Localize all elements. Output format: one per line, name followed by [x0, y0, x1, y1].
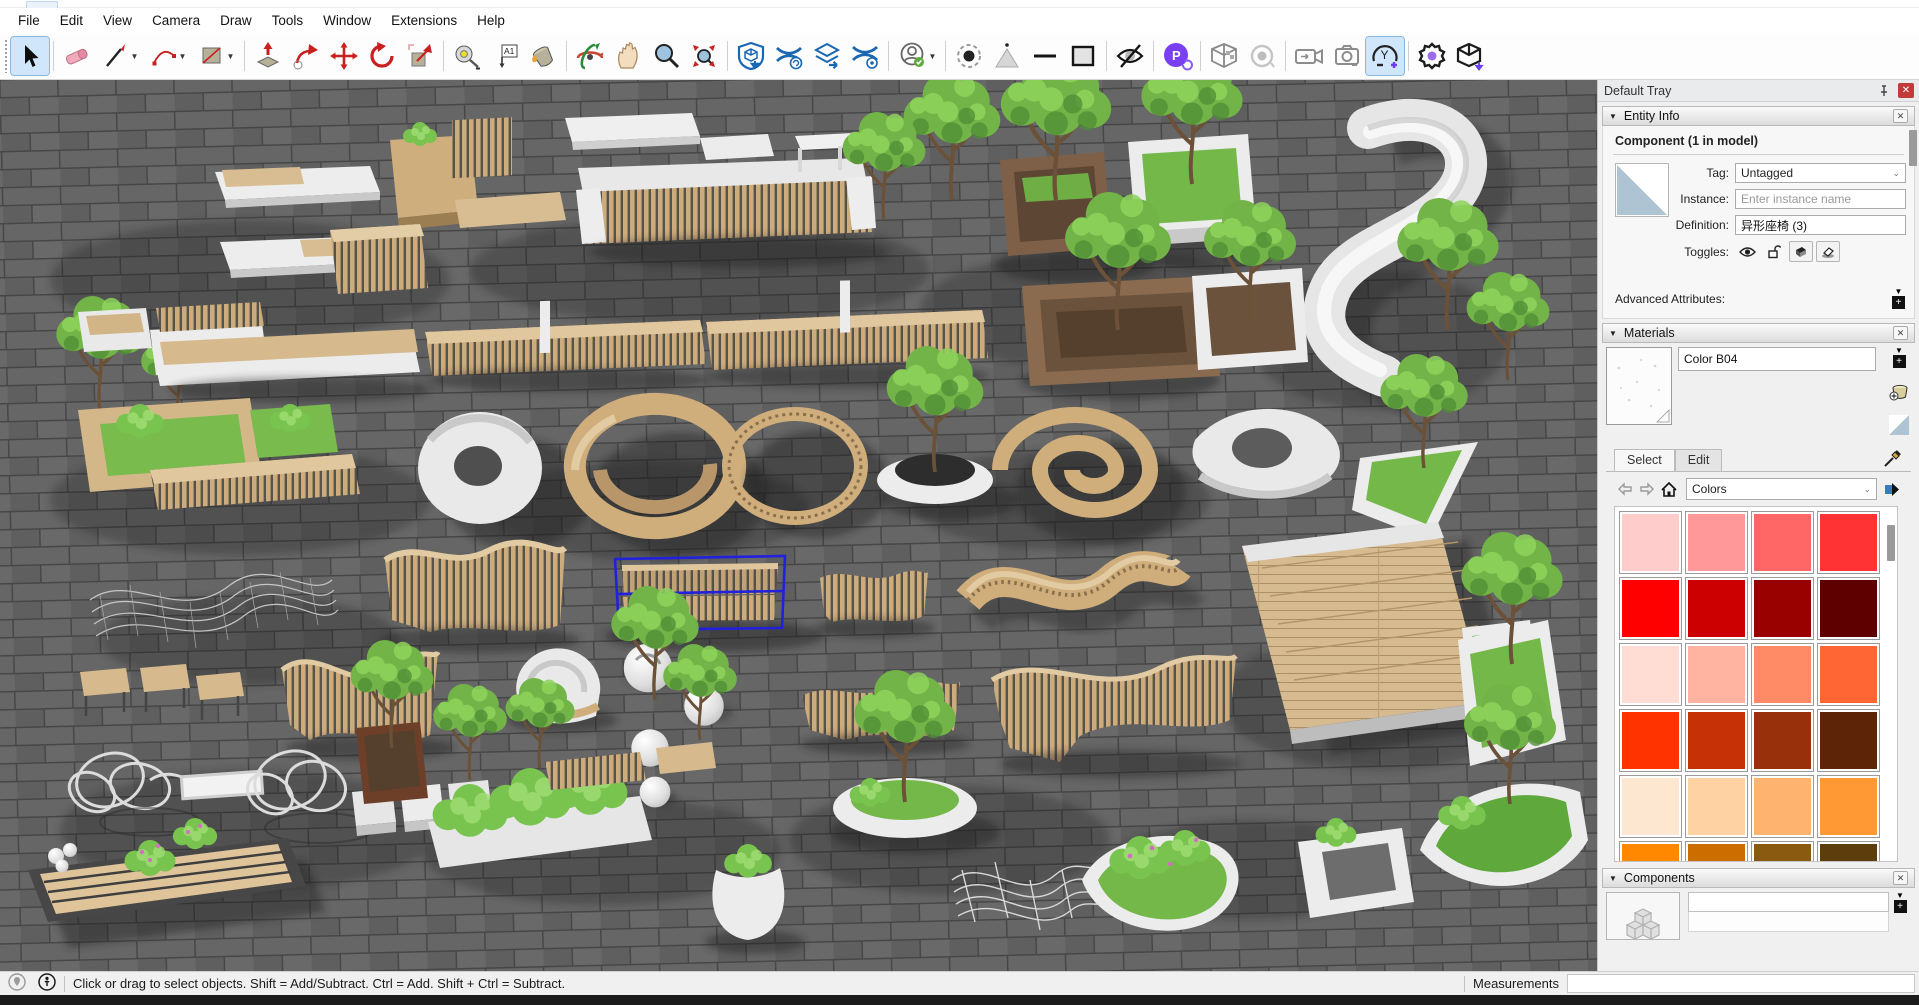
pin-icon[interactable] [1876, 83, 1892, 99]
advanced-attributes-label: Advanced Attributes: [1615, 292, 1891, 306]
credits-icon[interactable] [38, 973, 56, 994]
select-tool-icon[interactable] [11, 37, 49, 75]
tray-title: Default Tray [1604, 84, 1876, 98]
components-header[interactable]: ▼ Components ✕ [1602, 868, 1915, 888]
materials-tab-select[interactable]: Select [1614, 449, 1675, 471]
color-swatch-16[interactable] [1619, 775, 1682, 838]
rotate-tool-icon[interactable] [363, 37, 401, 75]
measurements-input[interactable] [1567, 974, 1915, 993]
zoom-extents-tool-icon[interactable] [685, 37, 723, 75]
tray-scrollbar[interactable] [1909, 130, 1917, 166]
materials-header[interactable]: ▼ Materials ✕ [1602, 323, 1915, 343]
component-count-label: Component (1 in model) [1603, 126, 1914, 154]
move-tool-icon[interactable] [325, 37, 363, 75]
color-swatch-1[interactable] [1685, 511, 1748, 574]
component-list[interactable] [1688, 912, 1889, 932]
section-rotate-icon[interactable] [1243, 37, 1281, 75]
materials-close-icon[interactable]: ✕ [1893, 326, 1908, 340]
definition-input[interactable] [1735, 215, 1906, 235]
svg-text:Y: Y [1381, 48, 1389, 62]
toolbar-grip[interactable] [4, 39, 9, 73]
forward-arrow-icon[interactable] [1636, 479, 1658, 499]
instance-label: Instance: [1671, 192, 1735, 206]
window-bottom-edge [0, 995, 1919, 1005]
eraser-tool-icon[interactable] [58, 37, 96, 75]
extension-warehouse-icon[interactable] [846, 37, 884, 75]
tape-measure-tool-icon[interactable] [448, 37, 486, 75]
section-cube-icon[interactable] [1205, 37, 1243, 75]
color-swatch-9[interactable] [1685, 643, 1748, 706]
zoom-tool-icon[interactable] [647, 37, 685, 75]
podium-icon[interactable]: P [1158, 37, 1196, 75]
menu-item-extensions[interactable]: Extensions [381, 10, 467, 31]
entity-info-close-icon[interactable]: ✕ [1893, 109, 1908, 123]
follow-me-tool-icon[interactable] [287, 37, 325, 75]
component-preview[interactable] [1606, 892, 1680, 940]
collapse-triangle-icon[interactable]: ▼ [1609, 112, 1617, 121]
sketchup-window: FileEditViewCameraDrawToolsWindowExtensi… [0, 0, 1919, 1005]
material-preview[interactable] [1606, 347, 1672, 425]
text-tool-icon[interactable]: A1 [486, 37, 524, 75]
menu-item-camera[interactable]: Camera [142, 10, 210, 31]
tag-dropdown[interactable]: Untagged⌄ [1735, 163, 1906, 183]
model-wave-bench-small[interactable] [815, 571, 935, 638]
tray-close-icon[interactable]: ✕ [1898, 83, 1914, 98]
color-swatch-panel [1614, 506, 1898, 862]
menu-item-help[interactable]: Help [467, 10, 515, 31]
measurements-label: Measurements [1473, 976, 1559, 991]
components-expand-icon[interactable]: ▼+ [1893, 892, 1908, 914]
title-bar-stub [26, 1, 58, 8]
line-tool-icon[interactable]: ▼ [96, 37, 144, 75]
back-arrow-icon[interactable] [1614, 479, 1636, 499]
swatch-scrollbar[interactable] [1887, 525, 1895, 561]
definition-label: Definition: [1671, 218, 1735, 232]
title-bar [0, 0, 1919, 8]
orbit-tool-icon[interactable] [571, 37, 609, 75]
svg-text:P: P [1172, 48, 1181, 63]
toggles-label: Toggles: [1671, 245, 1735, 259]
material-collection-dropdown[interactable]: Colors⌄ [1686, 478, 1877, 500]
hidden-toggle-eye-icon[interactable] [1735, 241, 1759, 262]
menu-bar: FileEditViewCameraDrawToolsWindowExtensi… [0, 8, 1919, 33]
color-swatch-22[interactable] [1751, 841, 1814, 862]
default-tray-panel: Default Tray ✕ ▼ Entity Info ✕ Component… [1597, 80, 1919, 971]
scale-tool-icon[interactable] [401, 37, 439, 75]
shapes-tool-icon[interactable]: ▼ [192, 37, 240, 75]
scene-camera-icon[interactable] [1328, 37, 1366, 75]
entity-info-header[interactable]: ▼ Entity Info ✕ [1602, 106, 1915, 126]
tag-label: Tag: [1671, 166, 1735, 180]
color-swatch-8[interactable] [1619, 643, 1682, 706]
components-close-icon[interactable]: ✕ [1893, 871, 1908, 885]
menu-item-file[interactable]: File [8, 10, 50, 31]
materials-expand-icon[interactable]: ▼+ [1892, 347, 1907, 369]
color-swatch-7[interactable] [1817, 577, 1880, 640]
component-search-field[interactable] [1688, 892, 1889, 912]
default-material-icon[interactable] [1888, 414, 1910, 439]
color-swatch-13[interactable] [1685, 709, 1748, 772]
component-thumbnail[interactable] [1615, 163, 1669, 217]
3d-warehouse-icon[interactable] [732, 37, 770, 75]
color-swatch-15[interactable] [1817, 709, 1880, 772]
tray-title-bar: Default Tray ✕ [1598, 80, 1919, 102]
lock-toggle-icon[interactable] [1762, 241, 1786, 262]
camera-add-icon[interactable]: Y [1366, 37, 1404, 75]
status-bar: Click or drag to select objects. Shift =… [0, 971, 1919, 995]
menu-item-view[interactable]: View [93, 10, 142, 31]
color-swatch-23[interactable] [1817, 841, 1880, 862]
cast-shadows-toggle-icon[interactable] [1816, 241, 1840, 262]
instance-input[interactable] [1735, 189, 1906, 209]
monochrome-style-icon[interactable] [1111, 37, 1149, 75]
entity-info-title: Entity Info [1624, 109, 1893, 123]
create-material-icon[interactable] [1889, 383, 1909, 404]
hidden-line-style-icon[interactable] [1064, 37, 1102, 75]
color-swatch-19[interactable] [1817, 775, 1880, 838]
sample-paint-icon[interactable] [1883, 448, 1903, 471]
chevron-down-icon: ⌄ [1892, 168, 1900, 179]
collection-detail-arrow-icon[interactable] [1881, 479, 1903, 499]
components-title: Components [1624, 871, 1893, 885]
color-swatch-4[interactable] [1619, 577, 1682, 640]
color-swatch-2[interactable] [1751, 511, 1814, 574]
materials-tab-edit[interactable]: Edit [1675, 449, 1723, 471]
menu-item-edit[interactable]: Edit [50, 10, 93, 31]
status-hint: Click or drag to select objects. Shift =… [73, 976, 565, 991]
color-swatch-14[interactable] [1751, 709, 1814, 772]
viewport-scene[interactable] [0, 80, 1597, 971]
model-wave-slat-bench[interactable] [380, 543, 580, 653]
receive-shadows-toggle-icon[interactable] [1789, 241, 1813, 262]
color-swatch-5[interactable] [1685, 577, 1748, 640]
menu-item-tools[interactable]: Tools [262, 10, 314, 31]
color-swatch-grid [1615, 507, 1897, 862]
menu-item-draw[interactable]: Draw [210, 10, 262, 31]
svg-text:A1: A1 [504, 46, 515, 56]
color-swatch-20[interactable] [1619, 841, 1682, 862]
push-pull-tool-icon[interactable] [249, 37, 287, 75]
model-bench-white-slab[interactable] [565, 113, 700, 150]
material-name-input[interactable] [1678, 347, 1876, 371]
render-settings-icon[interactable] [1413, 37, 1451, 75]
model-long-slat-bench[interactable] [576, 158, 890, 268]
animation-camera-icon[interactable] [1290, 37, 1328, 75]
account-icon[interactable]: ▼ [893, 37, 941, 75]
wireframe-style-icon[interactable] [1026, 37, 1064, 75]
color-swatch-10[interactable] [1751, 643, 1814, 706]
color-swatch-21[interactable] [1685, 841, 1748, 862]
menu-item-window[interactable]: Window [313, 10, 381, 31]
color-swatch-17[interactable] [1685, 775, 1748, 838]
collapse-triangle-icon[interactable]: ▼ [1609, 329, 1617, 338]
color-swatch-11[interactable] [1817, 643, 1880, 706]
toolbar: ▼ ▼ ▼ A1 [0, 33, 1919, 80]
export-model-icon[interactable] [1451, 37, 1489, 75]
color-swatch-3[interactable] [1817, 511, 1880, 574]
materials-title: Materials [1624, 326, 1893, 340]
color-swatch-0[interactable] [1619, 511, 1682, 574]
arc-tool-icon[interactable]: ▼ [144, 37, 192, 75]
color-swatch-6[interactable] [1751, 577, 1814, 640]
share-model-icon[interactable] [770, 37, 808, 75]
x-ray-style-icon[interactable] [950, 37, 988, 75]
geolocation-icon[interactable] [8, 973, 26, 994]
back-edges-style-icon[interactable] [988, 37, 1026, 75]
home-icon[interactable] [1658, 479, 1680, 499]
chevron-down-icon: ⌄ [1863, 484, 1871, 495]
share-component-icon[interactable] [808, 37, 846, 75]
paint-bucket-tool-icon[interactable] [524, 37, 562, 75]
color-swatch-18[interactable] [1751, 775, 1814, 838]
collapse-triangle-icon[interactable]: ▼ [1609, 874, 1617, 883]
pan-tool-icon[interactable] [609, 37, 647, 75]
color-swatch-12[interactable] [1619, 709, 1682, 772]
advanced-attributes-expand-icon[interactable]: ▼+ [1891, 288, 1906, 310]
